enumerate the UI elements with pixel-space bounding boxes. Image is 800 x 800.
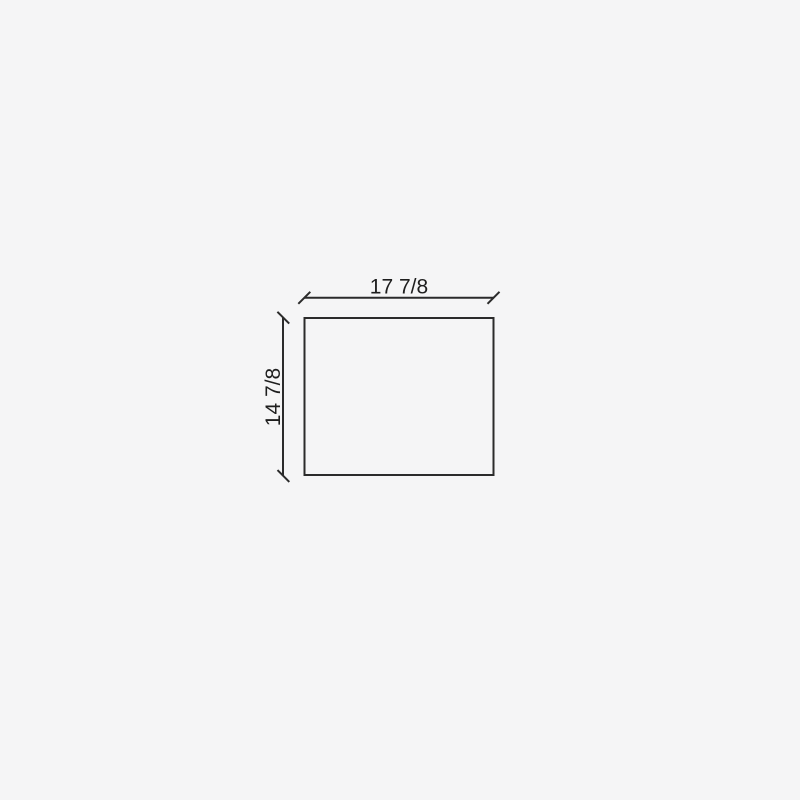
svg-text:17 7/8: 17 7/8: [370, 276, 428, 299]
svg-text:14 7/8: 14 7/8: [262, 368, 285, 426]
